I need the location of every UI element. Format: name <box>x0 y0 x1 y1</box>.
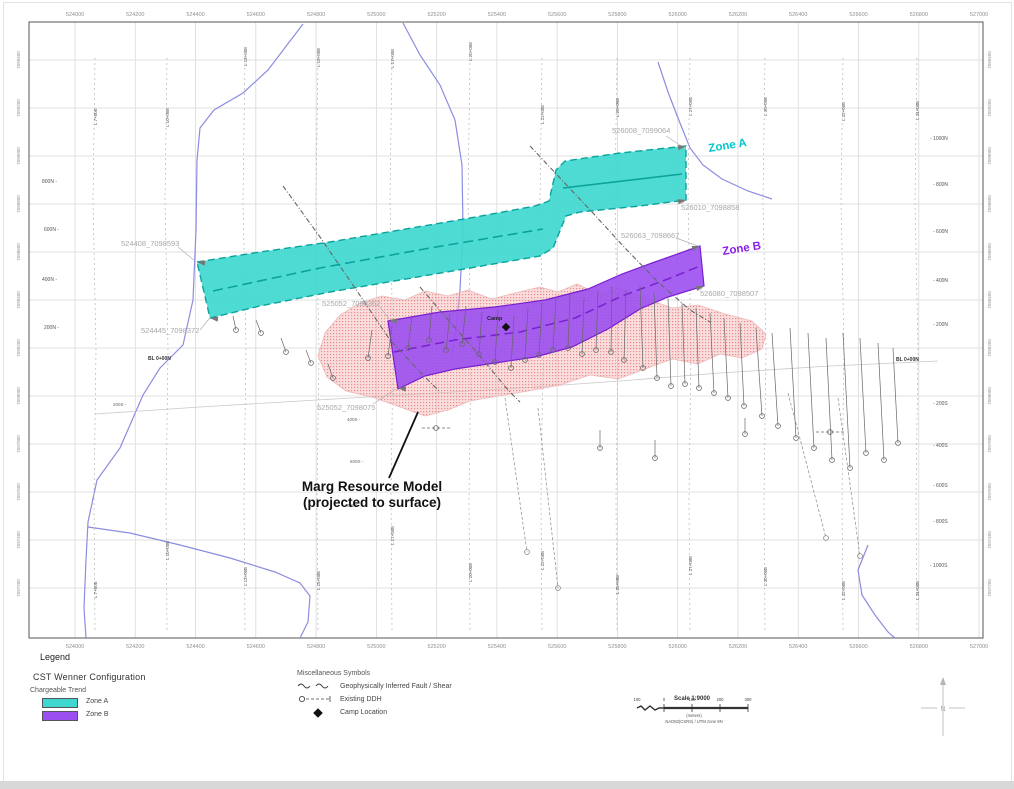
drillhole-trace-long <box>838 398 860 556</box>
easting-label-top: 524600 <box>247 12 265 18</box>
coordinate-label: 526063_7098667 <box>621 231 679 240</box>
baseline-label: BL 0+00N <box>896 357 919 363</box>
easting-label-bottom: 525600 <box>548 644 566 650</box>
easting-label-top: 525200 <box>427 12 445 18</box>
leader-line <box>178 247 195 261</box>
coordinate-label: 526008_7099064 <box>612 126 670 135</box>
easting-label-bottom: 525200 <box>427 644 445 650</box>
survey-line-label: L 25+00E <box>615 98 620 117</box>
easting-label-top: 526000 <box>669 12 687 18</box>
northing-label-left: 7098400 <box>16 291 21 309</box>
survey-line-label: L 10+00E <box>165 541 170 560</box>
northing-label-right: 7097200 <box>987 579 992 597</box>
station-label: 800N - <box>42 179 57 185</box>
legend-ddh-label: Existing DDH <box>340 696 382 703</box>
drillhole-trace <box>826 338 832 460</box>
legend-camp-label: Camp Location <box>340 709 387 716</box>
coordinate-label: 524445_7098372 <box>141 326 199 335</box>
easting-label-top: 526600 <box>849 12 867 18</box>
coordinate-label: 525052_7098362 <box>322 299 380 308</box>
camp-label: Camp <box>487 316 503 322</box>
survey-line-label: L 15+00E <box>316 571 321 590</box>
northing-label-left: 7097800 <box>16 435 21 453</box>
survey-line-label: L 32+00E <box>841 102 846 121</box>
survey-line <box>915 58 918 630</box>
scale-datum: NAD83(CSRS) / UTM zone 8N <box>665 719 722 724</box>
survey-line-label: L 7+00E <box>93 108 98 125</box>
scale-meters: (meters) <box>686 713 702 718</box>
survey-line-label: L 22+00E <box>540 551 545 570</box>
scale-bar: Scale 1:90001000100200300(meters)NAD83(C… <box>634 696 753 724</box>
easting-label-bottom: 526200 <box>729 644 747 650</box>
easting-label-bottom: 524000 <box>66 644 84 650</box>
legend-section-cst: CST Wenner Configuration <box>33 672 146 682</box>
northing-label-right: 7097400 <box>987 531 992 549</box>
drillhole-trace <box>878 343 884 460</box>
easting-label-bottom: 526800 <box>910 644 928 650</box>
survey-line-label: L 30+00E <box>763 97 768 116</box>
drillhole-trace-long <box>788 393 826 538</box>
legend-title: Legend <box>40 652 70 662</box>
northing-label-left: 7098800 <box>16 195 21 213</box>
map-sheet: 5240005240005242005242005244005244005246… <box>0 0 1014 789</box>
northing-label-right: 7099400 <box>987 51 992 69</box>
scale-tick-label: 0 <box>663 697 666 702</box>
northing-label-right: 7099200 <box>987 99 992 117</box>
station-label: 600S - <box>350 459 364 464</box>
marg-map-canvas: 5240005240005242005242005244005244005246… <box>0 0 1014 789</box>
drillhole-trace <box>808 333 814 448</box>
station-label: - 400S <box>933 443 948 449</box>
survey-line-label: L 17+00E <box>390 526 395 545</box>
stream <box>88 527 310 638</box>
survey-line-label: L 27+00E <box>688 556 693 575</box>
survey-line-label: L 20+00E <box>468 563 473 582</box>
easting-label-bottom: 526000 <box>669 644 687 650</box>
station-label: 400N - <box>42 277 57 283</box>
marg-title-line1: Marg Resource Model <box>302 479 442 494</box>
station-label: - 1000S <box>930 563 948 569</box>
northing-label-left: 7099400 <box>16 51 21 69</box>
drillhole-trace <box>843 333 850 468</box>
easting-label-top: 526200 <box>729 12 747 18</box>
survey-line-label: L 13+00E <box>243 567 248 586</box>
marg-leader <box>389 412 418 478</box>
marg-callout: Marg Resource Model(projected to surface… <box>302 412 442 510</box>
northing-label-right: 7098400 <box>987 291 992 309</box>
easting-label-bottom: 525000 <box>367 644 385 650</box>
survey-line <box>93 58 96 630</box>
easting-label-top: 527000 <box>970 12 988 18</box>
easting-label-top: 525800 <box>608 12 626 18</box>
survey-line-label: L 20+00E <box>468 42 473 61</box>
coordinate-label: 526080_7098507 <box>700 289 758 298</box>
north-arrow: N <box>921 677 965 736</box>
leader-line <box>200 319 209 330</box>
northing-label-right: 7097800 <box>987 435 992 453</box>
easting-label-bottom: 526600 <box>849 644 867 650</box>
easting-label-bottom: 524400 <box>186 644 204 650</box>
scale-tick-label: 100 <box>689 697 697 702</box>
survey-line-label: L 22+00E <box>540 105 545 124</box>
survey-line-label: L 34+00E <box>915 581 920 600</box>
north-arrow-head <box>940 677 946 685</box>
stream <box>858 545 895 638</box>
marg-title-line2: (projected to surface) <box>303 495 441 510</box>
zone-a-label: Zone A <box>708 137 748 155</box>
survey-line-label: L 27+00E <box>688 97 693 116</box>
station-label: - 800N <box>933 182 948 188</box>
northing-label-left: 7099000 <box>16 147 21 165</box>
easting-label-top: 524400 <box>186 12 204 18</box>
northing-label-left: 7098600 <box>16 243 21 261</box>
scale-tick-label: 200 <box>717 697 725 702</box>
northing-label-right: 7098600 <box>987 243 992 261</box>
legend-zone-b-label: Zone B <box>86 711 109 718</box>
survey-line <box>243 58 246 630</box>
legend-symbols <box>298 684 330 718</box>
station-label: 200N - <box>44 325 59 331</box>
easting-label-bottom: 524800 <box>307 644 325 650</box>
easting-label-bottom: 527000 <box>970 644 988 650</box>
drillhole-trace <box>790 328 796 438</box>
easting-label-top: 525600 <box>548 12 566 18</box>
station-label: 200S - <box>113 402 127 407</box>
legend-misc-title: Miscellaneous Symbols <box>297 670 370 677</box>
northing-label-right: 7099000 <box>987 147 992 165</box>
station-label: - 600N <box>933 229 948 235</box>
easting-label-bottom: 526400 <box>789 644 807 650</box>
northing-label-left: 7097400 <box>16 531 21 549</box>
easting-label-bottom: 524600 <box>247 644 265 650</box>
legend-fault-label: Geophysically Inferred Fault / Shear <box>340 683 452 690</box>
easting-label-bottom: 525400 <box>488 644 506 650</box>
drillhole-trace-long <box>505 398 527 552</box>
northing-label-left: 7097200 <box>16 579 21 597</box>
fault-symbol <box>298 684 328 688</box>
station-label: 600N - <box>44 227 59 233</box>
station-label: - 200S <box>933 401 948 407</box>
station-label: - 600S <box>933 483 948 489</box>
station-label: - 400N <box>933 278 948 284</box>
survey-line-label: L 15+00E <box>316 48 321 67</box>
drillhole-trace <box>772 333 778 426</box>
scale-tick-label: 100 <box>634 697 642 702</box>
northing-label-left: 7099200 <box>16 99 21 117</box>
coordinate-label: 524408_7098593 <box>121 239 179 248</box>
northing-label-left: 7098000 <box>16 387 21 405</box>
easting-label-top: 524000 <box>66 12 84 18</box>
northing-label-left: 7098200 <box>16 339 21 357</box>
baseline-label: BL 0+00N <box>148 356 171 362</box>
survey-line-label: L 7+00E <box>93 581 98 598</box>
zone-b-label: Zone B <box>722 240 762 258</box>
survey-line-label: L 30+00E <box>763 567 768 586</box>
northing-label-right: 7098000 <box>987 387 992 405</box>
legend-chargeable-trend: Chargeable Trend <box>30 687 86 694</box>
leader-line <box>666 136 683 147</box>
scale-tick-label: 300 <box>745 697 753 702</box>
northing-label-right: 7097600 <box>987 483 992 501</box>
easting-label-top: 525000 <box>367 12 385 18</box>
station-label: 400S - <box>347 417 361 422</box>
survey-line-label: L 17+00E <box>390 49 395 68</box>
camp-symbol <box>313 708 323 718</box>
north-arrow-n: N <box>940 706 945 713</box>
northing-label-right: 7098800 <box>987 195 992 213</box>
station-label: - 1000N <box>930 136 948 142</box>
easting-label-top: 526400 <box>789 12 807 18</box>
survey-line-label: L 32+00E <box>841 581 846 600</box>
drillhole-trace <box>860 338 866 453</box>
survey-line-label: L 34+00E <box>915 101 920 120</box>
coordinate-label: 525052_7098075 <box>317 403 375 412</box>
easting-label-top: 524800 <box>307 12 325 18</box>
survey-line-label: L 10+00E <box>165 108 170 127</box>
ddh-symbol <box>299 696 304 701</box>
northing-label-left: 7097600 <box>16 483 21 501</box>
station-label: - 800S <box>933 519 948 525</box>
survey-line-label: L 13+00E <box>243 47 248 66</box>
survey-line-label: L 25+00E <box>615 575 620 594</box>
legend-zone-a-label: Zone A <box>86 698 108 705</box>
bottom-strip <box>0 781 1014 789</box>
northing-label-right: 7098200 <box>987 339 992 357</box>
easting-label-top: 526800 <box>910 12 928 18</box>
easting-label-bottom: 524200 <box>126 644 144 650</box>
easting-label-bottom: 525800 <box>608 644 626 650</box>
easting-label-top: 524200 <box>126 12 144 18</box>
legend-zone-a-swatch <box>42 698 78 708</box>
easting-label-top: 525400 <box>488 12 506 18</box>
station-label: - 200N <box>933 322 948 328</box>
coordinate-label: 526010_7098858 <box>681 203 739 212</box>
legend-zone-b-swatch <box>42 711 78 721</box>
